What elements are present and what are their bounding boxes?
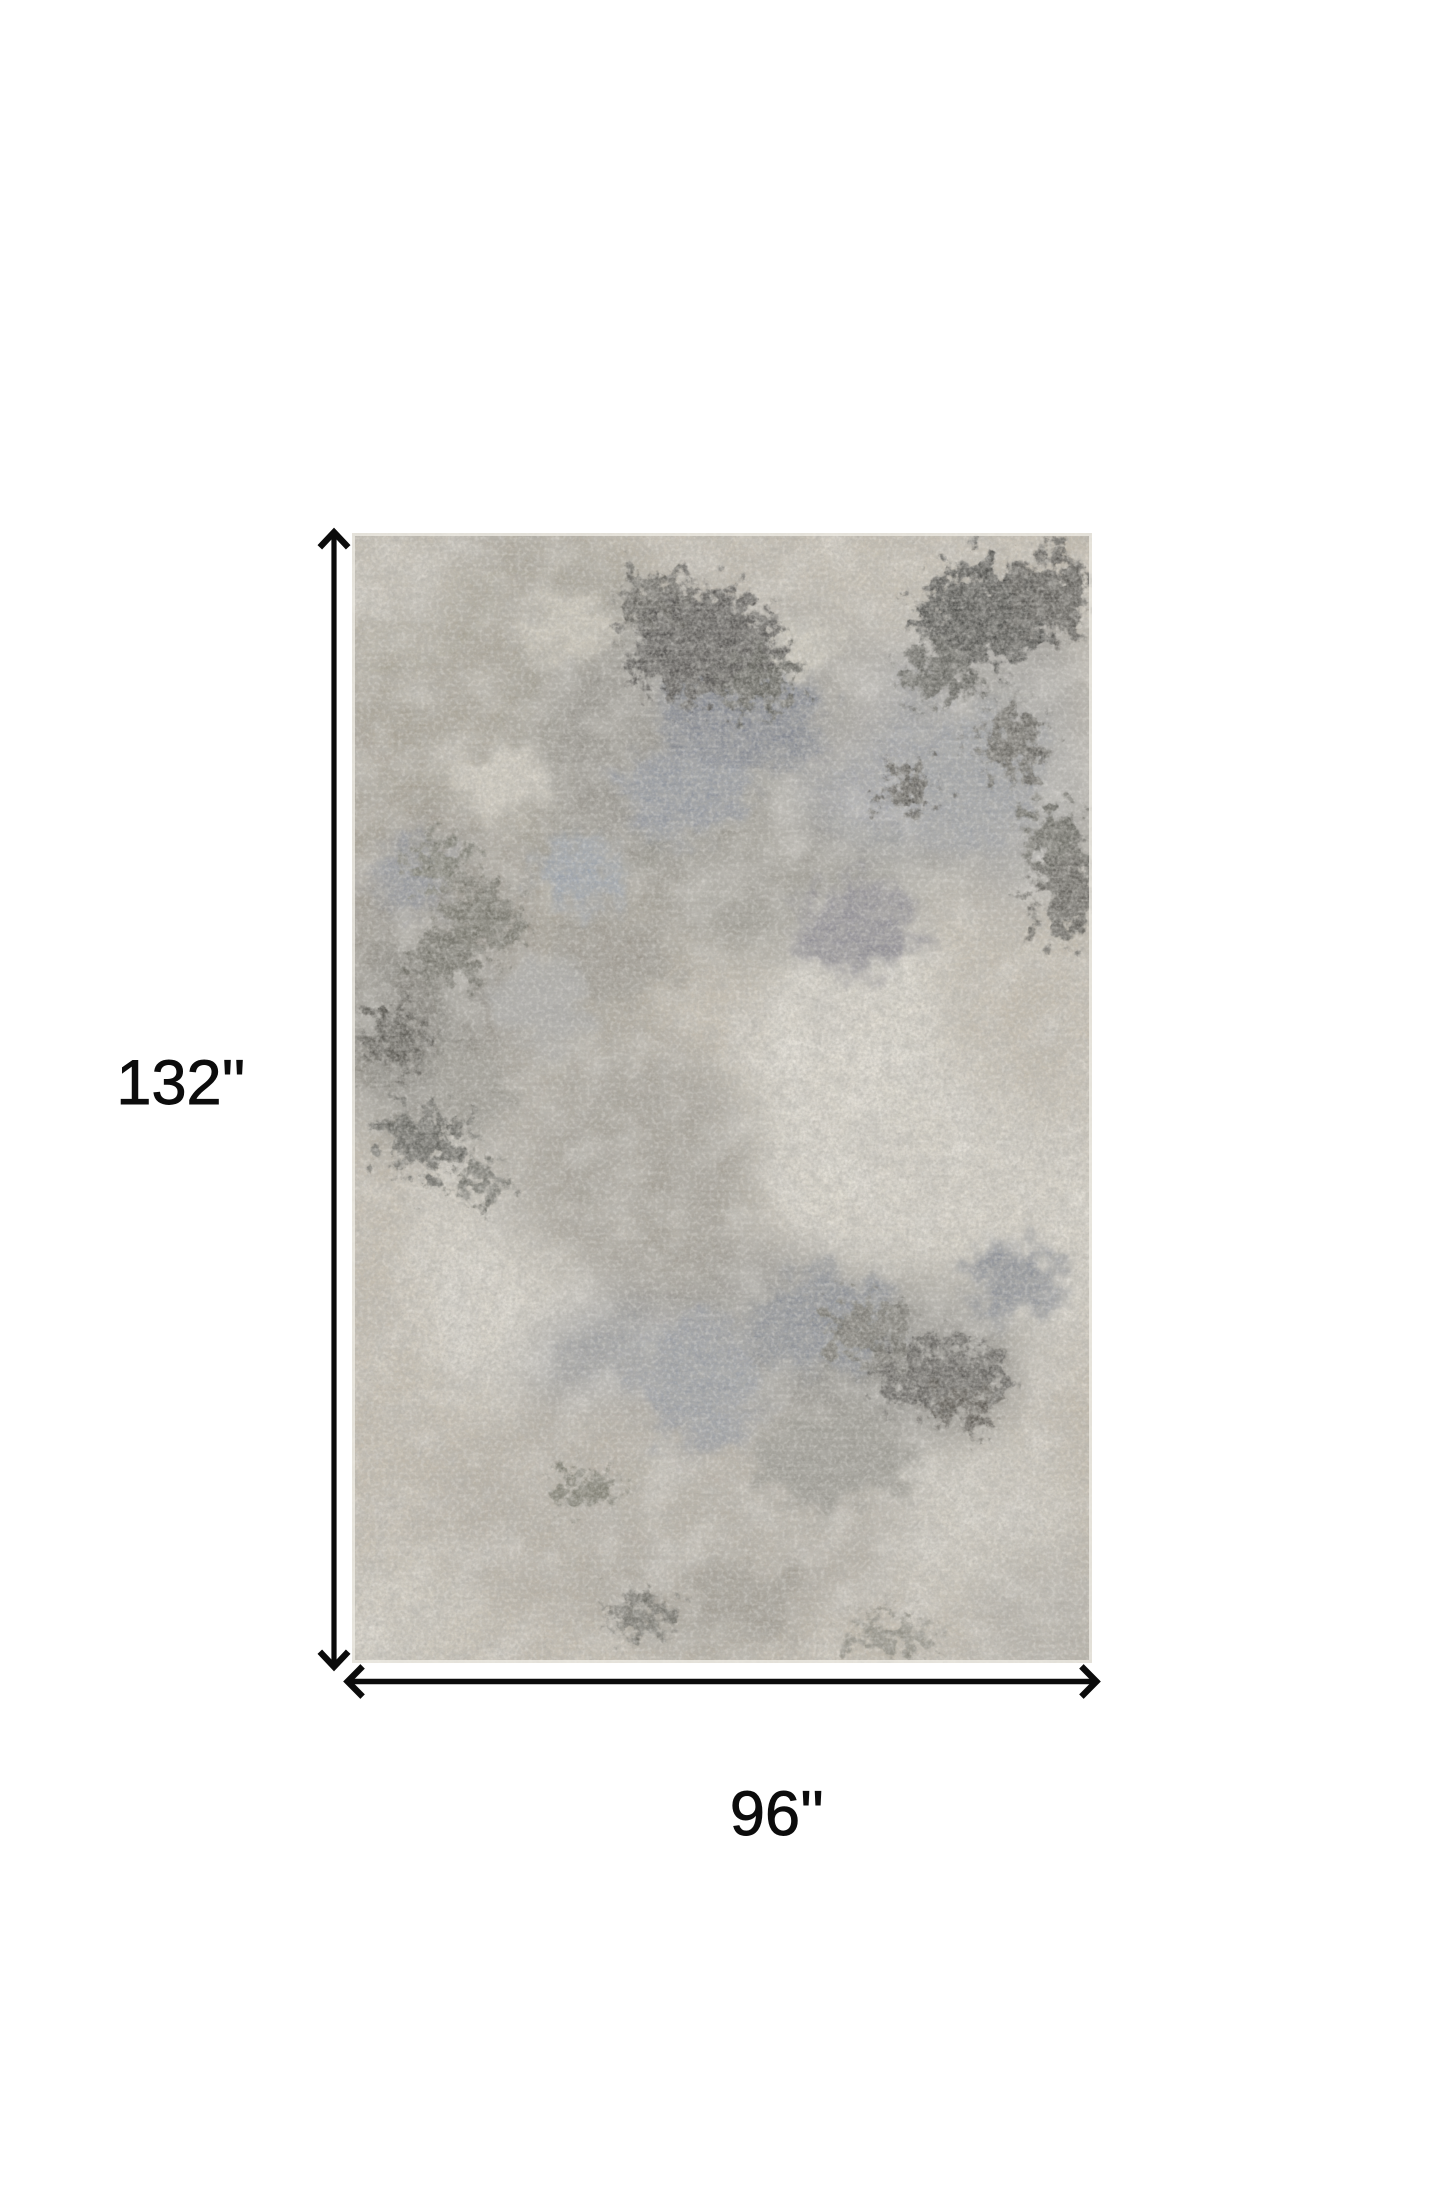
svg-text:96'': 96''	[730, 1779, 824, 1849]
svg-text:132'': 132''	[116, 1048, 245, 1118]
